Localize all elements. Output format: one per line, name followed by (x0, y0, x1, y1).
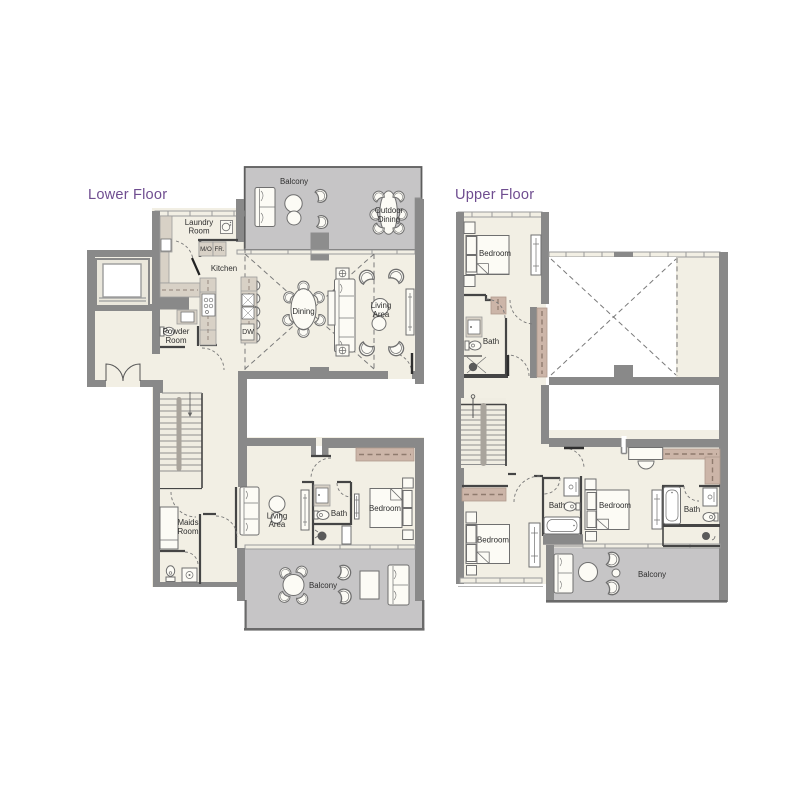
svg-text:Bedroom: Bedroom (479, 249, 511, 258)
svg-text:Lower Floor: Lower Floor (88, 187, 167, 203)
svg-text:Bath: Bath (331, 509, 347, 518)
svg-text:Kitchen: Kitchen (211, 264, 237, 273)
svg-text:Room: Room (165, 336, 186, 345)
svg-text:Area: Area (373, 310, 390, 319)
svg-text:Living: Living (371, 301, 392, 310)
svg-text:Balcony: Balcony (309, 581, 337, 590)
svg-text:Room: Room (188, 227, 209, 236)
svg-text:Maids: Maids (177, 518, 198, 527)
svg-text:Bedroom: Bedroom (599, 501, 631, 510)
svg-text:Bath: Bath (684, 505, 700, 514)
svg-text:Outdoor: Outdoor (375, 206, 404, 215)
svg-text:Bedroom: Bedroom (477, 536, 509, 545)
svg-text:Dining: Dining (378, 215, 400, 224)
svg-text:Bath: Bath (483, 337, 499, 346)
svg-text:Bath: Bath (549, 501, 565, 510)
svg-text:Balcony: Balcony (638, 570, 666, 579)
svg-text:M/O: M/O (200, 246, 212, 253)
svg-text:Dining: Dining (292, 307, 314, 316)
svg-text:DW: DW (242, 329, 254, 336)
svg-text:FR.: FR. (215, 246, 225, 253)
svg-text:Upper Floor: Upper Floor (455, 187, 534, 203)
svg-text:Powder: Powder (163, 327, 190, 336)
svg-text:Area: Area (269, 520, 286, 529)
svg-text:Balcony: Balcony (280, 177, 308, 186)
svg-text:Bedroom: Bedroom (369, 504, 401, 513)
svg-text:Room: Room (177, 527, 198, 536)
